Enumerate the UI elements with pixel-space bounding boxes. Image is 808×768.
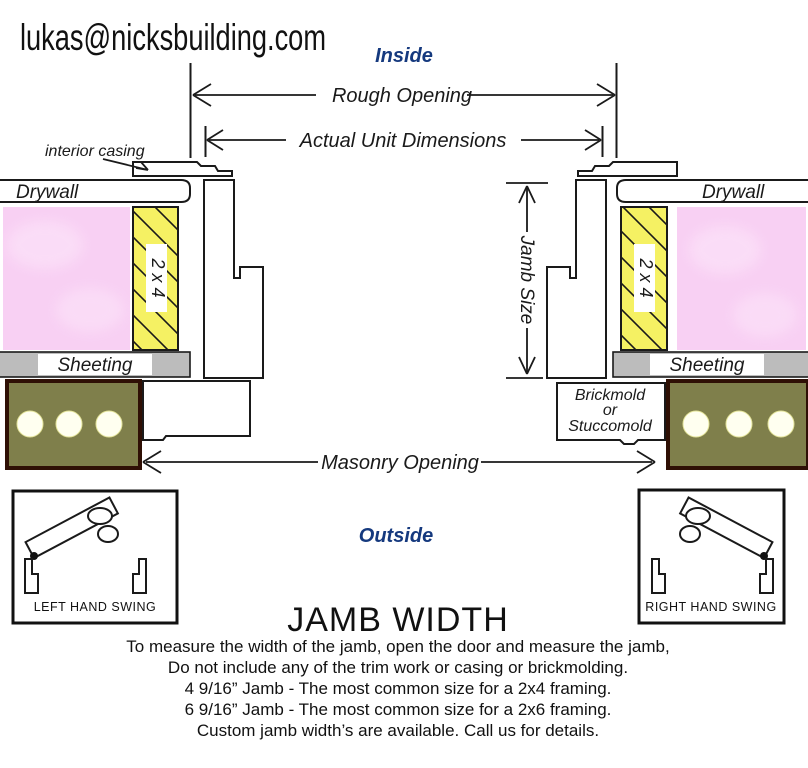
masonry-opening-dimension: Masonry Opening bbox=[143, 451, 655, 474]
interior-casing-label: interior casing bbox=[45, 143, 145, 160]
brickmold-label-line2: or bbox=[603, 402, 618, 419]
email-text: lukas@nicksbuilding.com bbox=[20, 17, 326, 58]
masonry-opening-label: Masonry Opening bbox=[321, 452, 479, 474]
left-swing-box: LEFT HAND SWING bbox=[13, 491, 177, 623]
left-door-knob-bottom bbox=[98, 526, 118, 542]
right-drywall-label: Drywall bbox=[702, 182, 765, 203]
right-casing-shape bbox=[578, 162, 677, 176]
left-masonry-hole-3 bbox=[96, 411, 122, 437]
jamb-size-dimension: Jamb Size bbox=[506, 183, 548, 378]
right-masonry-hole-2 bbox=[726, 411, 752, 437]
brickmold-label-line3: Stuccomold bbox=[568, 418, 653, 435]
jamb-size-label: Jamb Size bbox=[516, 235, 537, 325]
rough-opening-label: Rough Opening bbox=[332, 85, 472, 107]
right-insulation-texture2 bbox=[733, 293, 797, 337]
right-door-knob-top bbox=[686, 508, 710, 524]
footer-text: JAMB WIDTH To measure the width of the j… bbox=[126, 601, 669, 740]
left-stud-label: 2 x 4 bbox=[148, 257, 168, 297]
right-wall-section: 2 x 4 Drywall Sheeting Brickmold or Stuc… bbox=[547, 162, 808, 468]
outside-label: Outside bbox=[359, 525, 433, 547]
body-line-1: To measure the width of the jamb, open t… bbox=[126, 637, 669, 656]
right-swing-box: RIGHT HAND SWING bbox=[639, 490, 784, 623]
right-door-knob-bottom bbox=[680, 526, 700, 542]
left-insulation-texture2 bbox=[56, 288, 124, 332]
right-insulation-texture bbox=[689, 226, 761, 274]
diagram-canvas: lukas@nicksbuilding.com Inside Rough Ope… bbox=[0, 0, 808, 768]
body-line-2: Do not include any of the trim work or c… bbox=[168, 658, 628, 677]
right-stud-label: 2 x 4 bbox=[636, 257, 656, 297]
page-heading: JAMB WIDTH bbox=[287, 601, 509, 639]
left-brickmold-shape bbox=[143, 381, 250, 440]
left-drywall-label: Drywall bbox=[16, 182, 79, 203]
right-swing-label: RIGHT HAND SWING bbox=[645, 600, 776, 614]
body-line-3: 4 9/16” Jamb - The most common size for … bbox=[185, 679, 612, 698]
actual-unit-dimension: Actual Unit Dimensions bbox=[206, 126, 603, 157]
left-swing-label: LEFT HAND SWING bbox=[34, 600, 157, 614]
left-door-knob-top bbox=[88, 508, 112, 524]
body-line-4: 6 9/16” Jamb - The most common size for … bbox=[185, 700, 612, 719]
left-wall-section: 2 x 4 Drywall Sheeting interior casing bbox=[0, 143, 263, 468]
actual-unit-label: Actual Unit Dimensions bbox=[299, 130, 507, 152]
right-jamb bbox=[547, 180, 606, 378]
right-masonry-hole-3 bbox=[768, 411, 794, 437]
inside-label: Inside bbox=[375, 45, 433, 67]
left-masonry-hole-2 bbox=[56, 411, 82, 437]
body-line-5: Custom jamb width’s are available. Call … bbox=[197, 721, 599, 740]
jamb-width-diagram: lukas@nicksbuilding.com Inside Rough Ope… bbox=[0, 0, 808, 768]
right-sheeting-label: Sheeting bbox=[669, 355, 744, 376]
left-masonry-hole-1 bbox=[17, 411, 43, 437]
right-masonry-hole-1 bbox=[683, 411, 709, 437]
left-jamb bbox=[204, 180, 263, 378]
left-sheeting-label: Sheeting bbox=[57, 355, 132, 376]
left-insulation-texture bbox=[7, 221, 83, 269]
